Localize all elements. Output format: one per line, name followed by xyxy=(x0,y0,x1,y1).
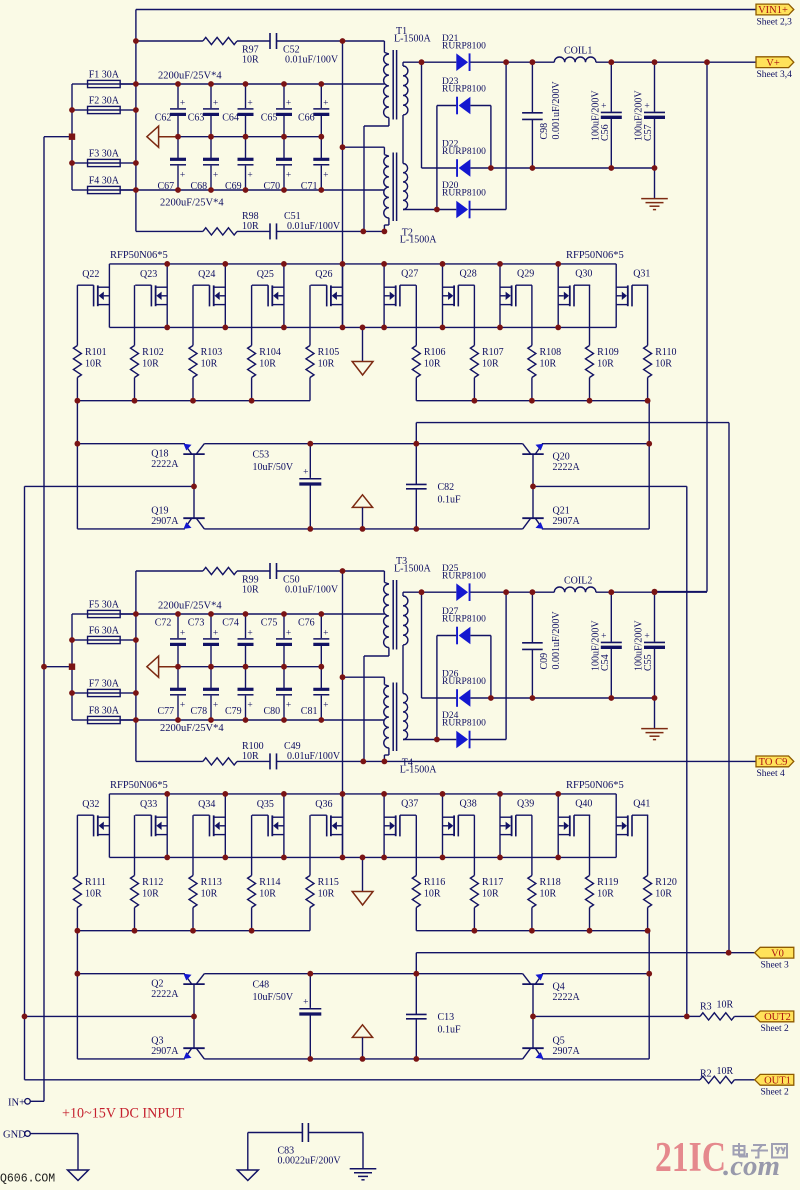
svg-text:F4 30A: F4 30A xyxy=(89,176,120,187)
svg-text:+: + xyxy=(213,170,218,180)
svg-text:RFP50N06*5: RFP50N06*5 xyxy=(110,780,168,791)
svg-text:R113: R113 xyxy=(201,877,222,888)
svg-text:10R: 10R xyxy=(318,359,335,370)
svg-text:+: + xyxy=(247,629,252,639)
svg-text:+: + xyxy=(213,99,218,109)
svg-text:10R: 10R xyxy=(717,1066,734,1077)
svg-text:10R: 10R xyxy=(597,889,614,900)
svg-text:C79: C79 xyxy=(225,706,242,717)
svg-text:0.001uF/200V: 0.001uF/200V xyxy=(551,611,562,670)
svg-text:Q26: Q26 xyxy=(315,269,332,280)
svg-text:Q30: Q30 xyxy=(575,269,592,280)
svg-text:Q39: Q39 xyxy=(517,799,534,810)
svg-text:+: + xyxy=(286,99,291,109)
svg-text:10R: 10R xyxy=(242,55,259,66)
svg-text:R103: R103 xyxy=(201,347,223,358)
svg-text:GND: GND xyxy=(3,1129,26,1140)
svg-text:C69: C69 xyxy=(225,181,242,192)
svg-text:10R: 10R xyxy=(482,889,499,900)
svg-text:R104: R104 xyxy=(259,347,281,358)
svg-text:RURP8100: RURP8100 xyxy=(442,719,486,729)
svg-text:Q34: Q34 xyxy=(198,799,215,810)
svg-text:2907A: 2907A xyxy=(151,1046,179,1057)
svg-text:10R: 10R xyxy=(318,889,335,900)
svg-text:C76: C76 xyxy=(298,618,315,629)
svg-text:+: + xyxy=(286,700,291,710)
svg-text:2222A: 2222A xyxy=(151,989,179,1000)
svg-text:L-1500A: L-1500A xyxy=(400,764,437,775)
svg-text:Q20: Q20 xyxy=(553,452,570,463)
svg-text:C78: C78 xyxy=(191,706,208,717)
svg-text:RFP50N06*5: RFP50N06*5 xyxy=(566,250,624,261)
svg-text:C53: C53 xyxy=(253,450,270,461)
svg-text:2907A: 2907A xyxy=(151,516,179,527)
svg-text:F6 30A: F6 30A xyxy=(89,626,120,637)
svg-text:0.01uF/100V: 0.01uF/100V xyxy=(285,55,339,66)
svg-text:RURP8100: RURP8100 xyxy=(442,147,486,157)
svg-text:C68: C68 xyxy=(191,181,208,192)
svg-text:VIN1+: VIN1+ xyxy=(758,5,788,16)
svg-text:RURP8100: RURP8100 xyxy=(442,189,486,199)
svg-text:2200uF/25V*4: 2200uF/25V*4 xyxy=(158,601,222,612)
svg-text:R3: R3 xyxy=(700,1002,712,1013)
svg-text:R102: R102 xyxy=(142,347,164,358)
svg-text:RURP8100: RURP8100 xyxy=(442,85,486,95)
svg-text:IN+: IN+ xyxy=(8,1097,25,1108)
svg-text:C48: C48 xyxy=(253,980,270,991)
svg-text:+: + xyxy=(247,170,252,180)
svg-text:2222A: 2222A xyxy=(151,459,179,470)
svg-text:R120: R120 xyxy=(655,877,677,888)
svg-text:2907A: 2907A xyxy=(553,516,581,527)
svg-text:0.0022uF/200V: 0.0022uF/200V xyxy=(278,1155,342,1166)
svg-text:0.001uF/200V: 0.001uF/200V xyxy=(551,81,562,140)
svg-text:RFP50N06*5: RFP50N06*5 xyxy=(566,780,624,791)
svg-text:C77: C77 xyxy=(158,706,175,717)
svg-text:L-1500A: L-1500A xyxy=(394,564,431,575)
svg-text:Q18: Q18 xyxy=(151,449,168,460)
svg-text:Q606.COM: Q606.COM xyxy=(0,1173,55,1186)
svg-text:C66: C66 xyxy=(298,112,315,123)
svg-text:Sheet 3,4: Sheet 3,4 xyxy=(757,70,793,80)
svg-text:Sheet 2,3: Sheet 2,3 xyxy=(757,17,793,27)
svg-text:Q37: Q37 xyxy=(401,799,418,810)
svg-text:C75: C75 xyxy=(261,618,278,629)
svg-text:Q33: Q33 xyxy=(140,799,157,810)
svg-text:Q25: Q25 xyxy=(257,269,274,280)
svg-text:Sheet 4: Sheet 4 xyxy=(757,769,785,779)
svg-text:21IC: 21IC xyxy=(655,1135,726,1181)
svg-text:R118: R118 xyxy=(540,877,561,888)
svg-text:C67: C67 xyxy=(158,181,175,192)
svg-text:R111: R111 xyxy=(85,877,106,888)
svg-text:10R: 10R xyxy=(717,1000,734,1011)
svg-text:2200uF/25V*4: 2200uF/25V*4 xyxy=(160,198,224,209)
svg-text:Q35: Q35 xyxy=(257,799,274,810)
svg-text:10R: 10R xyxy=(482,359,499,370)
svg-text:Q28: Q28 xyxy=(460,269,477,280)
svg-text:2907A: 2907A xyxy=(553,1046,581,1057)
svg-text:C71: C71 xyxy=(301,181,318,192)
svg-text:Q36: Q36 xyxy=(315,799,332,810)
svg-text:C80: C80 xyxy=(264,706,281,717)
svg-text:10R: 10R xyxy=(201,889,218,900)
svg-text:COIL2: COIL2 xyxy=(564,576,592,587)
svg-text:10R: 10R xyxy=(142,359,159,370)
svg-text:C56: C56 xyxy=(600,124,611,141)
svg-text:+: + xyxy=(180,629,185,639)
svg-text:F3 30A: F3 30A xyxy=(89,149,120,160)
svg-text:Sheet 3: Sheet 3 xyxy=(761,961,789,971)
svg-text:10R: 10R xyxy=(85,359,102,370)
svg-text:C74: C74 xyxy=(222,618,239,629)
svg-text:C82: C82 xyxy=(438,482,455,493)
svg-text:+: + xyxy=(213,629,218,639)
svg-text:R2: R2 xyxy=(700,1069,712,1080)
svg-text:RURP8100: RURP8100 xyxy=(442,571,486,581)
svg-text:RURP8100: RURP8100 xyxy=(442,677,486,687)
svg-text:C65: C65 xyxy=(261,112,278,123)
svg-text:F2 30A: F2 30A xyxy=(89,96,120,107)
svg-text:2200uF/25V*4: 2200uF/25V*4 xyxy=(160,723,224,734)
svg-text:C63: C63 xyxy=(188,112,205,123)
svg-text:10R: 10R xyxy=(540,359,557,370)
svg-text:R108: R108 xyxy=(540,347,562,358)
svg-text:0.01uF/100V: 0.01uF/100V xyxy=(287,751,341,762)
svg-text:C62: C62 xyxy=(155,112,172,123)
svg-text:R114: R114 xyxy=(259,877,280,888)
svg-text:Q22: Q22 xyxy=(82,269,99,280)
svg-text:+: + xyxy=(286,629,291,639)
svg-text:F8 30A: F8 30A xyxy=(89,706,120,717)
svg-text:Q31: Q31 xyxy=(633,269,650,280)
svg-text:R107: R107 xyxy=(482,347,504,358)
svg-text:C55: C55 xyxy=(643,654,654,671)
svg-text:+: + xyxy=(601,632,606,642)
svg-text:R115: R115 xyxy=(318,877,339,888)
svg-text:Q38: Q38 xyxy=(460,799,477,810)
svg-text:L-1500A: L-1500A xyxy=(400,234,437,245)
svg-text:Q41: Q41 xyxy=(633,799,650,810)
svg-text:10R: 10R xyxy=(655,889,672,900)
svg-text:R119: R119 xyxy=(597,877,618,888)
svg-text:Sheet 2: Sheet 2 xyxy=(761,1088,789,1098)
svg-text:Q19: Q19 xyxy=(151,506,168,517)
svg-text:C64: C64 xyxy=(222,112,239,123)
svg-text:2222A: 2222A xyxy=(553,462,581,473)
svg-text:+: + xyxy=(323,99,328,109)
svg-text:RURP8100: RURP8100 xyxy=(442,41,486,51)
svg-text:COIL1: COIL1 xyxy=(564,46,592,57)
svg-text:+: + xyxy=(180,99,185,109)
svg-text:C81: C81 xyxy=(301,706,318,717)
svg-text:OUT2: OUT2 xyxy=(764,1012,791,1023)
svg-text:R112: R112 xyxy=(142,877,163,888)
svg-text:+: + xyxy=(180,700,185,710)
svg-text:0.01uF/100V: 0.01uF/100V xyxy=(285,585,339,596)
svg-text:R101: R101 xyxy=(85,347,107,358)
svg-text:V+: V+ xyxy=(766,58,780,69)
svg-text:C98: C98 xyxy=(539,123,550,140)
svg-text:+: + xyxy=(213,700,218,710)
svg-text:+: + xyxy=(180,170,185,180)
svg-text:10R: 10R xyxy=(242,221,259,232)
svg-text:+10~15V DC INPUT: +10~15V DC INPUT xyxy=(62,1106,184,1122)
svg-text:Q21: Q21 xyxy=(553,506,570,517)
svg-text:OUT1: OUT1 xyxy=(764,1075,791,1086)
svg-text:10R: 10R xyxy=(201,359,218,370)
svg-text:10R: 10R xyxy=(424,359,441,370)
svg-text:C70: C70 xyxy=(264,181,281,192)
svg-text:10R: 10R xyxy=(142,889,159,900)
svg-text:10uF/50V: 10uF/50V xyxy=(253,992,294,1003)
svg-text:+: + xyxy=(303,468,308,478)
svg-text:+: + xyxy=(323,700,328,710)
svg-text:Q3: Q3 xyxy=(151,1036,163,1047)
svg-text:10R: 10R xyxy=(424,889,441,900)
svg-text:10R: 10R xyxy=(85,889,102,900)
svg-text:0.1uF: 0.1uF xyxy=(438,1025,462,1036)
svg-text:0.01uF/100V: 0.01uF/100V xyxy=(287,221,341,232)
svg-text:2222A: 2222A xyxy=(553,992,581,1003)
svg-text:C72: C72 xyxy=(155,618,172,629)
svg-text:RFP50N06*5: RFP50N06*5 xyxy=(110,250,168,261)
svg-text:Q40: Q40 xyxy=(575,799,592,810)
svg-text:R105: R105 xyxy=(318,347,340,358)
svg-text:+: + xyxy=(601,102,606,112)
svg-text:F7 30A: F7 30A xyxy=(89,679,120,690)
svg-text:+: + xyxy=(303,998,308,1008)
svg-text:R106: R106 xyxy=(424,347,446,358)
svg-text:10uF/50V: 10uF/50V xyxy=(253,462,294,473)
svg-text:V0: V0 xyxy=(771,948,784,959)
svg-text:C54: C54 xyxy=(600,654,611,671)
svg-text:+: + xyxy=(644,632,649,642)
svg-text:L-1500A: L-1500A xyxy=(394,34,431,45)
svg-text:10R: 10R xyxy=(259,889,276,900)
svg-text:R109: R109 xyxy=(597,347,619,358)
svg-text:Q32: Q32 xyxy=(82,799,99,810)
svg-text:R110: R110 xyxy=(655,347,676,358)
svg-text:+: + xyxy=(323,629,328,639)
svg-text:C13: C13 xyxy=(438,1012,455,1023)
svg-text:10R: 10R xyxy=(655,359,672,370)
svg-text:R117: R117 xyxy=(482,877,503,888)
svg-text:10R: 10R xyxy=(597,359,614,370)
svg-text:TO C9: TO C9 xyxy=(759,757,788,768)
svg-text:+: + xyxy=(286,170,291,180)
svg-text:Q4: Q4 xyxy=(553,982,565,993)
svg-text:C09: C09 xyxy=(539,653,550,670)
svg-text:2200uF/25V*4: 2200uF/25V*4 xyxy=(158,71,222,82)
svg-text:+: + xyxy=(323,170,328,180)
svg-text:F5 30A: F5 30A xyxy=(89,600,120,611)
svg-text:Q27: Q27 xyxy=(401,269,418,280)
svg-text:Q23: Q23 xyxy=(140,269,157,280)
svg-text:10R: 10R xyxy=(540,889,557,900)
svg-text:F1 30A: F1 30A xyxy=(89,70,120,81)
svg-text:R116: R116 xyxy=(424,877,445,888)
svg-text:+: + xyxy=(247,700,252,710)
svg-text:Q2: Q2 xyxy=(151,979,163,990)
svg-text:10R: 10R xyxy=(242,585,259,596)
svg-text:Q24: Q24 xyxy=(198,269,215,280)
svg-text:Q5: Q5 xyxy=(553,1036,565,1047)
svg-text:10R: 10R xyxy=(259,359,276,370)
svg-text:Sheet 2: Sheet 2 xyxy=(761,1024,789,1034)
svg-text:RURP8100: RURP8100 xyxy=(442,615,486,625)
svg-text:+: + xyxy=(644,102,649,112)
svg-text:10R: 10R xyxy=(242,751,259,762)
svg-text:C57: C57 xyxy=(643,124,654,141)
svg-text:+: + xyxy=(247,99,252,109)
svg-text:0.1uF: 0.1uF xyxy=(438,495,462,506)
svg-text:Q29: Q29 xyxy=(517,269,534,280)
svg-text:C73: C73 xyxy=(188,618,205,629)
